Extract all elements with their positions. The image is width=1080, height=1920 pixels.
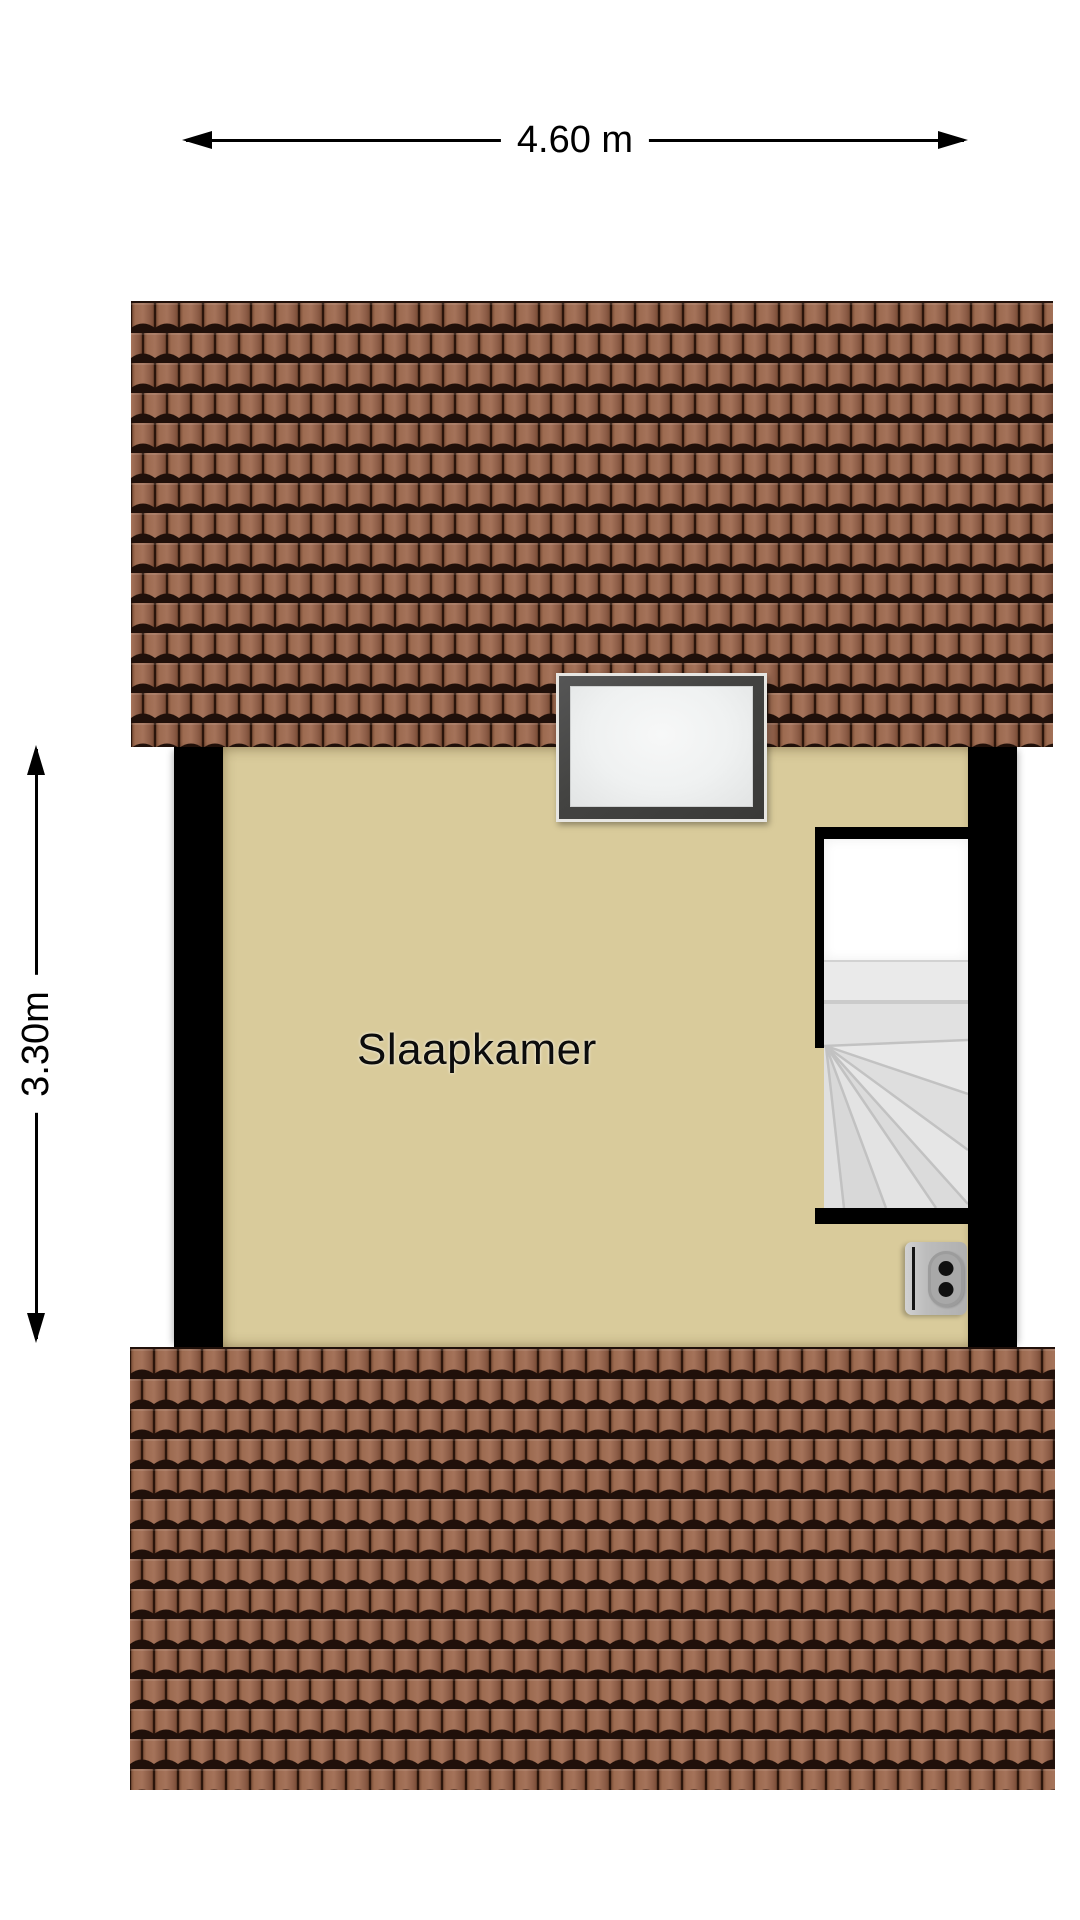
arrow-down-icon <box>27 1313 45 1343</box>
arrow-left-icon <box>182 131 212 149</box>
arrow-right-icon <box>938 131 968 149</box>
height-dimension-label: 3.30m <box>11 975 61 1113</box>
outlet-hole-top <box>939 1261 954 1276</box>
floorplan-canvas: { "floorplan": { "room": { "label": "Sla… <box>0 0 1080 1920</box>
arrow-up-icon <box>27 745 45 775</box>
stairwell-opening <box>824 839 968 960</box>
window-pane <box>570 686 753 807</box>
stair-winders <box>824 960 968 1208</box>
stair-steps <box>824 960 968 1208</box>
width-dimension-label: 4.60 m <box>501 115 649 165</box>
wall-outlet <box>905 1242 967 1315</box>
wall-right <box>968 747 1017 1347</box>
outlet-hole-bottom <box>939 1282 954 1297</box>
skylight-window <box>556 673 767 822</box>
stair-bottom-wall <box>815 1208 1017 1224</box>
outlet-socket <box>928 1251 964 1307</box>
stair-left-wall <box>815 827 824 1048</box>
roof-bottom <box>130 1347 1055 1790</box>
roof-tiles-pattern <box>130 1347 1055 1790</box>
wall-left <box>174 747 223 1347</box>
room-label: Slaapkamer <box>357 1026 597 1074</box>
outlet-divider-line <box>912 1247 915 1310</box>
stair-top-wall <box>815 827 968 839</box>
